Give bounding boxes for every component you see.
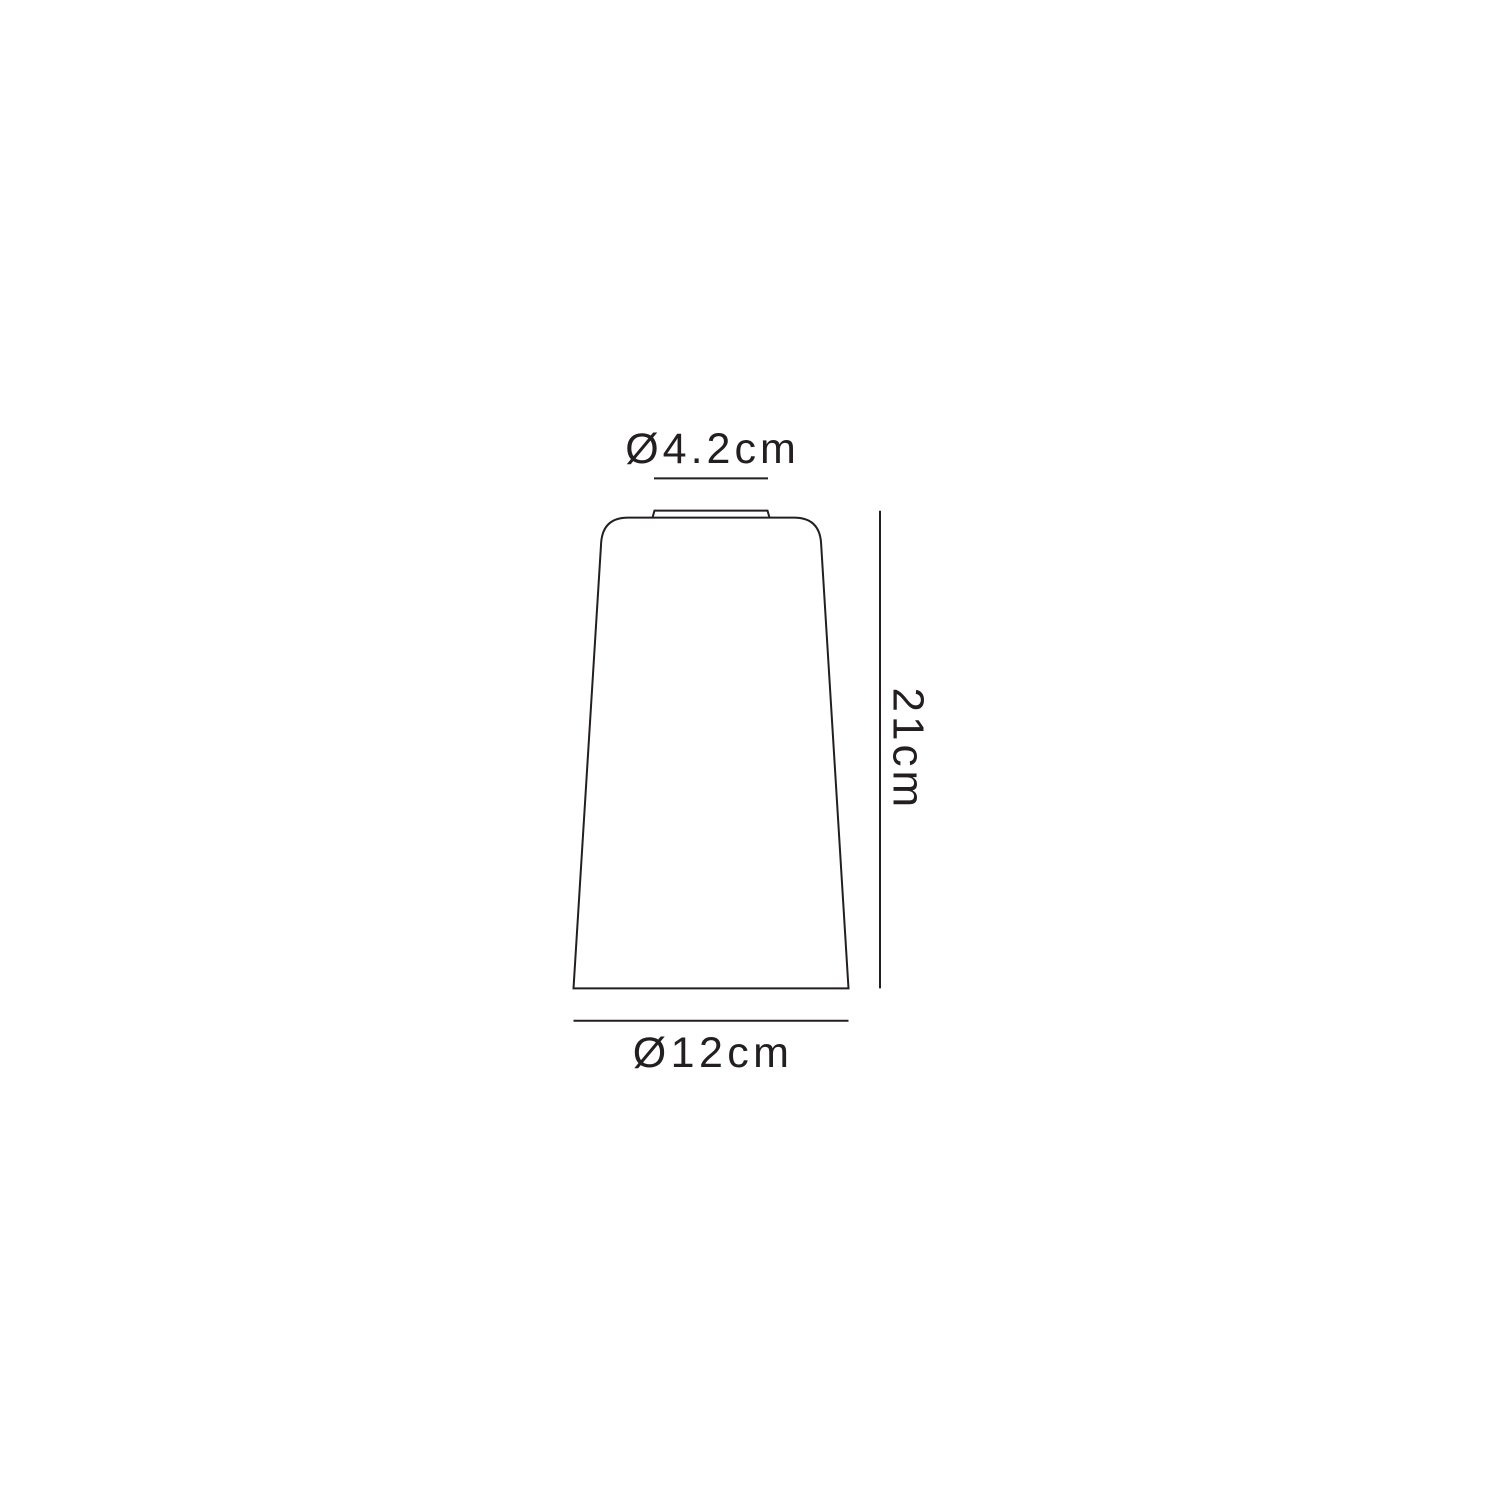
svg-text:Ø4.2cm: Ø4.2cm — [625, 425, 800, 473]
svg-text:Ø12cm: Ø12cm — [633, 1029, 794, 1077]
svg-text:21cm: 21cm — [884, 688, 933, 812]
